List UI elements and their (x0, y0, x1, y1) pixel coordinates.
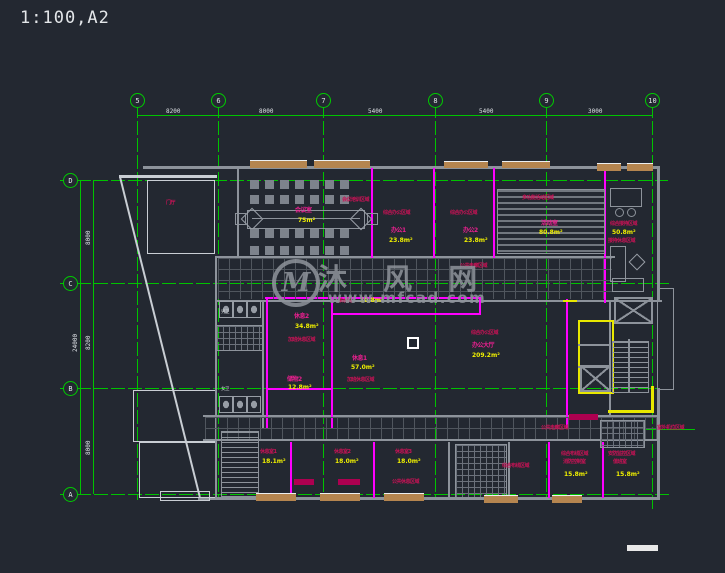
wall-toilet-right (262, 300, 264, 428)
cabling-room-hatch (455, 444, 507, 498)
toilet-fixture-6 (247, 396, 261, 413)
dim-D-C: 8000 (85, 231, 92, 245)
label-reception-zone: 综合接待区域 (610, 221, 637, 227)
grid-bubble-9: 9 (539, 93, 554, 108)
label-room-b1-area: 18.1m² (262, 459, 286, 465)
stair-core (612, 341, 649, 393)
wall-corridor2-bottom (203, 439, 659, 441)
label-rest2-zone: 加班休息区域 (288, 337, 315, 343)
wall-service-divider-1 (578, 344, 610, 346)
dimension-line-left (93, 180, 94, 494)
label-reception-zone-2: 接待休息区域 (608, 238, 635, 244)
grid-bubble-C: C (63, 276, 78, 291)
wall-exterior-right-lower (657, 388, 660, 500)
wall-yellow-bottom-right-v (651, 386, 654, 413)
label-office2-zone: 综合办公区域 (450, 210, 477, 216)
right-toilet-hatch (600, 420, 645, 448)
dim-8-9: 5400 (479, 108, 493, 115)
wall-hall-left (493, 168, 495, 258)
watermark-logo: M (272, 259, 320, 307)
solid-fill-3 (569, 414, 598, 420)
wall-bottom-divider-m4 (602, 442, 604, 498)
dim-6-7: 8000 (259, 108, 273, 115)
conference-chair-row-3 (250, 229, 354, 238)
dim-5-6: 8200 (166, 108, 180, 115)
stair-core-stringer (628, 339, 630, 393)
elevator-2 (580, 365, 611, 392)
dim-B-A: 8000 (85, 441, 92, 455)
label-rest1-zone: 加班休息区域 (347, 377, 374, 383)
window-lintel-bottom-5 (552, 495, 582, 503)
grid-bubble-7: 7 (316, 93, 331, 108)
wall-exterior-right-upper (657, 166, 660, 300)
label-conference-zone: 会议培训区域 (342, 197, 369, 203)
scale-bar (627, 545, 658, 551)
label-bigoffice-name: 办公大厅 (472, 343, 494, 349)
label-rest1-area: 57.0m² (351, 365, 375, 371)
window-lintel-bottom-4 (484, 495, 518, 503)
dim-C-B: 8200 (85, 336, 92, 350)
label-rest2-area: 34.8m² (295, 324, 319, 330)
entrance-canopy (160, 491, 210, 501)
label-lobby: 门厅 (166, 200, 175, 206)
window-lintel-bottom-3 (384, 493, 424, 501)
label-hall-zone: 多功能活动区域 (522, 195, 554, 201)
toilet-fixture-2 (233, 301, 247, 318)
label-bigoffice-zone: 综合办公区域 (471, 330, 498, 336)
watermark-url: www.mfcad.com (328, 289, 486, 307)
conference-chair-row-2 (250, 195, 354, 204)
wall-bottom-divider-1 (448, 442, 450, 498)
label-office1-area: 23.8m² (389, 238, 413, 244)
wall-bottom-divider-m3 (548, 442, 550, 498)
label-room-b3-name: 休息室3 (395, 449, 411, 455)
wall-rest2-right (331, 299, 333, 429)
wall-core-left (215, 256, 217, 498)
label-bigoffice-area: 209.2m² (472, 353, 500, 359)
label-fire-area: 15.8m² (564, 472, 588, 478)
label-storage-area: 12.8m² (288, 385, 312, 391)
label-conference-name: 会议室 (295, 208, 312, 214)
label-hall-area: 80.8m² (539, 230, 563, 236)
room-wing-lower-2-walls (139, 442, 217, 498)
cad-viewport[interactable]: 1:100,A2 5 6 7 8 9 10 D C B A 8200 8000 … (0, 0, 725, 573)
label-room-b2-area: 18.0m² (335, 459, 359, 465)
grid-bubble-B: B (63, 381, 78, 396)
conference-chair-row-1 (250, 180, 354, 189)
solid-fill-2 (338, 479, 360, 485)
grid-bubble-8: 8 (428, 93, 443, 108)
grid-bubble-A: A (63, 487, 78, 502)
wall-pantry-bottom (333, 313, 481, 315)
window-lintel-top-4 (502, 161, 550, 168)
label-room-b1-name: 休息室1 (260, 449, 276, 455)
label-rest2-name: 休息2 (294, 314, 309, 320)
reception-desk (610, 188, 642, 207)
reception-sofa-2 (612, 278, 644, 292)
label-corridor2-zone: 公共走廊区域 (541, 425, 568, 431)
label-room-b2-name: 休息室2 (334, 449, 350, 455)
grid-bubble-6: 6 (211, 93, 226, 108)
label-duty-name: 值班室 (613, 459, 627, 465)
label-fire-name: 消防控制室 (563, 459, 586, 465)
reception-sofa-1 (610, 246, 626, 282)
wall-yellow-bottom-right-h (608, 410, 654, 413)
selection-grip (407, 337, 419, 349)
window-lintel-bottom-2 (320, 493, 360, 501)
dimension-line-left-total (80, 180, 81, 494)
wall-exterior-right-bay (657, 288, 674, 390)
toilet-fixture-4 (219, 396, 233, 413)
label-office2-name: 办公2 (463, 228, 478, 234)
wall-bottom-divider-2 (508, 442, 510, 498)
label-hall-name: 活动室 (541, 221, 558, 227)
elevator-1 (614, 297, 653, 324)
corridor2-floor-tiles (205, 417, 657, 439)
label-storage-name: 储物2 (287, 377, 302, 383)
drawing-scale-title: 1:100,A2 (20, 8, 110, 28)
dimension-line-top (137, 115, 652, 116)
solid-fill-1 (294, 479, 314, 485)
wall-office-hall-right (566, 299, 568, 429)
reception-chair-2 (627, 208, 636, 217)
label-office2-area: 23.8m² (464, 238, 488, 244)
dim-9-10: 3000 (588, 108, 602, 115)
label-toilet-f: 女卫 (221, 387, 229, 393)
wall-wing-top (119, 175, 217, 178)
grid-bubble-5: 5 (130, 93, 145, 108)
label-conference-area: 75m² (298, 218, 315, 224)
conference-end-chair-left (235, 213, 246, 225)
wall-rest2-left (266, 299, 268, 429)
label-duty-area: 15.8m² (616, 472, 640, 478)
toilet-fixture-5 (233, 396, 247, 413)
window-lintel-bottom-1 (256, 493, 296, 501)
wall-bottom-divider-m2 (373, 442, 375, 498)
window-lintel-top-1 (250, 160, 307, 168)
room-lobby-walls (147, 180, 215, 254)
label-reception-area: 50.8m² (612, 230, 636, 236)
label-room-b3-zone: 公共休息区域 (392, 479, 419, 485)
window-lintel-top-5 (597, 163, 621, 171)
wall-office-divider (433, 168, 435, 258)
wall-exterior-top (143, 166, 659, 169)
reception-chair-1 (615, 208, 624, 217)
window-lintel-top-6 (627, 163, 653, 171)
label-outdoor-annotation: 室外机位区域 (657, 425, 684, 431)
conference-chair-row-4 (250, 246, 354, 255)
grid-bubble-10: 10 (645, 93, 660, 108)
label-office1-zone: 综合办公区域 (383, 210, 410, 216)
label-room-b3-area: 18.0m² (397, 459, 421, 465)
label-toilet-m: 男卫 (221, 310, 229, 316)
label-office1-name: 办公1 (391, 228, 406, 234)
toilet-hatch (216, 325, 263, 351)
toilet-fixture-3 (247, 301, 261, 318)
label-cabling-zone: 综合布线区域 (502, 463, 529, 469)
window-lintel-top-3 (444, 161, 488, 168)
wall-bottom-divider-m1 (290, 442, 292, 498)
label-rest1-name: 休息1 (352, 356, 367, 362)
wall-yellow-core-top (563, 300, 577, 302)
grid-bubble-D: D (63, 173, 78, 188)
dim-left-total: 24000 (72, 334, 79, 352)
label-fire-zone: 综合布线区域 (561, 451, 588, 457)
dim-7-8: 5400 (368, 108, 382, 115)
conference-end-chair-right (367, 213, 378, 225)
window-lintel-top-2 (314, 160, 370, 168)
stair-west (221, 431, 259, 497)
label-duty-zone: 安防监控区域 (608, 451, 635, 457)
reception-side-table (629, 254, 646, 271)
grid-line-row-B (60, 388, 660, 389)
